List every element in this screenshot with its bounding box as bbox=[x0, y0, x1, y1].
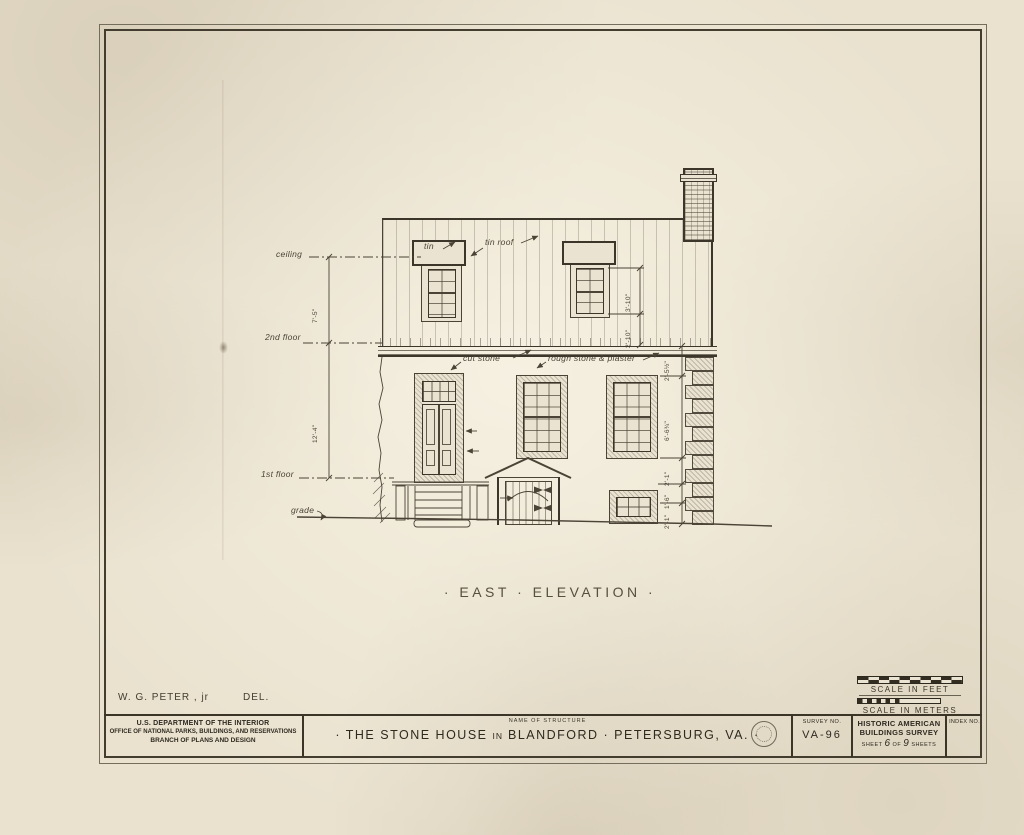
entry-door bbox=[422, 381, 456, 475]
delineator-role: DEL. bbox=[243, 692, 269, 703]
quoin-block bbox=[685, 469, 714, 483]
name-of-structure-label: NAME OF STRUCTURE bbox=[304, 718, 791, 724]
window-sash bbox=[613, 382, 651, 452]
basement-sash bbox=[616, 497, 651, 517]
door-leaves bbox=[422, 404, 456, 475]
agency-line-2: OFFICE OF NATIONAL PARKS, BUILDINGS, AND… bbox=[104, 729, 302, 735]
structure-name: · THE STONE HOUSE IN BLANDFORD · PETERSB… bbox=[304, 728, 791, 742]
structure-name-left: · THE STONE HOUSE bbox=[335, 728, 487, 742]
index-number-cell: INDEX NO. bbox=[945, 716, 982, 757]
scale-bar-meters bbox=[857, 698, 941, 704]
round-seal-stamp bbox=[751, 721, 777, 747]
seal-inner-ring bbox=[756, 726, 772, 742]
delineator-signature: W. G. PETER , jrDEL. bbox=[118, 692, 269, 703]
door-transom bbox=[422, 381, 456, 402]
tin-label: tin bbox=[424, 241, 434, 251]
tin-roof-label: tin roof bbox=[485, 237, 513, 247]
entry-door-surround bbox=[414, 373, 464, 483]
habs-line-2: BUILDINGS SURVEY bbox=[853, 728, 945, 737]
survey-number-cell: SURVEY NO. VA-96 bbox=[791, 716, 851, 757]
dim-basement-lower: 2'-1" bbox=[664, 515, 671, 529]
eave-ticks bbox=[380, 338, 716, 346]
sheets-word: SHEETS bbox=[911, 742, 936, 748]
sheet-total: 9 bbox=[903, 738, 909, 749]
quoin-block bbox=[692, 483, 714, 497]
quoin-block bbox=[685, 497, 714, 511]
dim-dormer-window: 3'-10" bbox=[625, 294, 632, 312]
right-dormer-hood bbox=[562, 241, 616, 265]
basement-window bbox=[609, 490, 658, 524]
agency-cell: U.S. DEPARTMENT OF THE INTERIOR OFFICE O… bbox=[104, 716, 302, 757]
dim-window-height: 6'-6¾" bbox=[664, 421, 671, 441]
rough-stone-label: rough stone & plaster bbox=[548, 353, 635, 363]
quoin-block bbox=[685, 441, 714, 455]
dim-ceiling-to-2nd: 7'-5" bbox=[312, 309, 319, 323]
first-floor-window-right bbox=[606, 375, 658, 459]
dim-band-to-window: 2'-5½" bbox=[664, 361, 671, 381]
right-dormer-window bbox=[576, 268, 604, 314]
ceiling-label: ceiling bbox=[276, 249, 302, 259]
quoin-block bbox=[692, 371, 714, 385]
quoin-block bbox=[692, 511, 714, 525]
second-floor-label: 2nd floor bbox=[265, 332, 301, 342]
door-panel bbox=[442, 450, 451, 466]
first-floor-window-left bbox=[516, 375, 568, 459]
dim-2nd-to-1st: 12'-4" bbox=[312, 425, 319, 443]
structure-name-right: BLANDFORD · PETERSBURG, VA. · bbox=[508, 728, 760, 742]
cut-stone-label: cut stone bbox=[463, 353, 500, 363]
door-panel bbox=[442, 409, 451, 445]
sheet-number: 6 bbox=[884, 738, 890, 749]
dim-dormer-sill: 2'-10" bbox=[625, 330, 632, 348]
left-dormer-window bbox=[428, 269, 456, 318]
scale-bar-row bbox=[858, 680, 962, 683]
title-block: U.S. DEPARTMENT OF THE INTERIOR OFFICE O… bbox=[104, 714, 982, 757]
dim-sill-to-floor: 2'-1" bbox=[664, 472, 671, 486]
sheet-word: SHEET bbox=[862, 742, 883, 748]
quoin-block bbox=[685, 413, 714, 427]
survey-number-value: VA-96 bbox=[793, 729, 851, 741]
index-number-label: INDEX NO. bbox=[947, 719, 982, 725]
cellar-bulkhead-door bbox=[505, 481, 552, 525]
elevation-caption: · EAST · ELEVATION · bbox=[430, 584, 670, 600]
quoin-block bbox=[685, 385, 714, 399]
structure-name-in: IN bbox=[493, 731, 504, 741]
quoin-block bbox=[692, 427, 714, 441]
scale-feet-label: SCALE IN FEET bbox=[859, 685, 961, 696]
left-dormer-hood bbox=[412, 240, 466, 266]
chimney-cap bbox=[680, 174, 717, 182]
quoin-block bbox=[692, 455, 714, 469]
first-floor-label: 1st floor bbox=[261, 469, 294, 479]
door-panel bbox=[426, 409, 435, 445]
habs-drawing-sheet: ceiling 2nd floor 1st floor grade tin ti… bbox=[0, 0, 1024, 835]
dim-basement-upper: 1'-6" bbox=[664, 495, 671, 509]
quoin-block bbox=[692, 399, 714, 413]
structure-name-cell: NAME OF STRUCTURE · THE STONE HOUSE IN B… bbox=[302, 716, 791, 757]
grade-label: grade bbox=[291, 505, 314, 515]
of-word: OF bbox=[893, 742, 902, 748]
survey-number-label: SURVEY NO. bbox=[793, 719, 851, 725]
habs-cell: HISTORIC AMERICAN BUILDINGS SURVEY SHEET… bbox=[851, 716, 945, 757]
agency-line-1: U.S. DEPARTMENT OF THE INTERIOR bbox=[104, 720, 302, 727]
habs-line-1: HISTORIC AMERICAN bbox=[853, 719, 945, 728]
scale-bar-feet bbox=[857, 676, 963, 684]
agency-line-3: BRANCH OF PLANS AND DESIGN bbox=[104, 737, 302, 744]
delineator-name: W. G. PETER , jr bbox=[118, 692, 209, 703]
sheet-count: SHEET 6 OF 9 SHEETS bbox=[853, 738, 945, 749]
scale-bar-checker bbox=[858, 699, 904, 703]
window-sash bbox=[523, 382, 561, 452]
door-panel bbox=[426, 450, 435, 466]
quoin-block bbox=[685, 357, 714, 371]
